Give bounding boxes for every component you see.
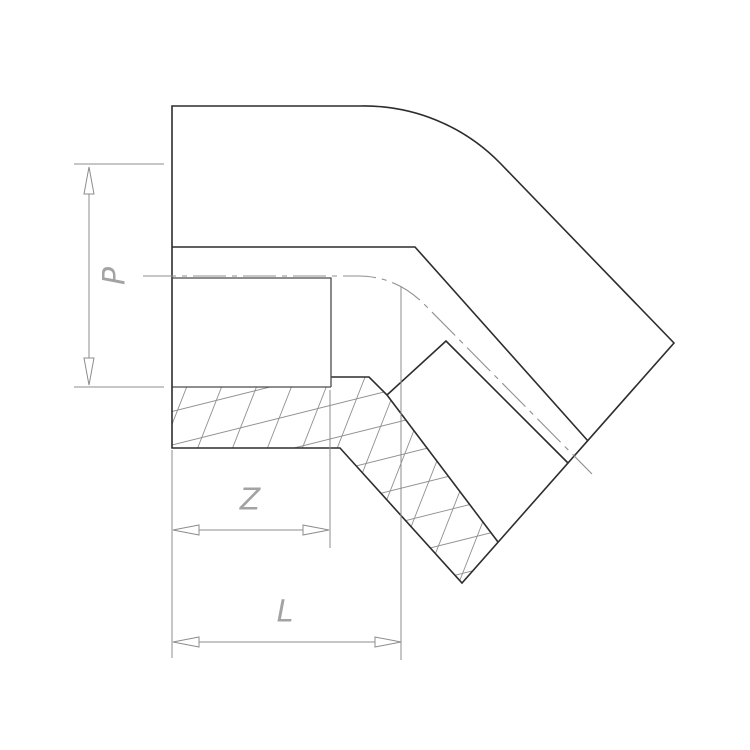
technical-drawing: P Z L [0,0,750,750]
dim-p-label: P [98,266,133,285]
dim-l-label: L [277,595,294,630]
drawing-canvas: P Z L [0,0,750,750]
dim-z-label: Z [239,483,262,518]
